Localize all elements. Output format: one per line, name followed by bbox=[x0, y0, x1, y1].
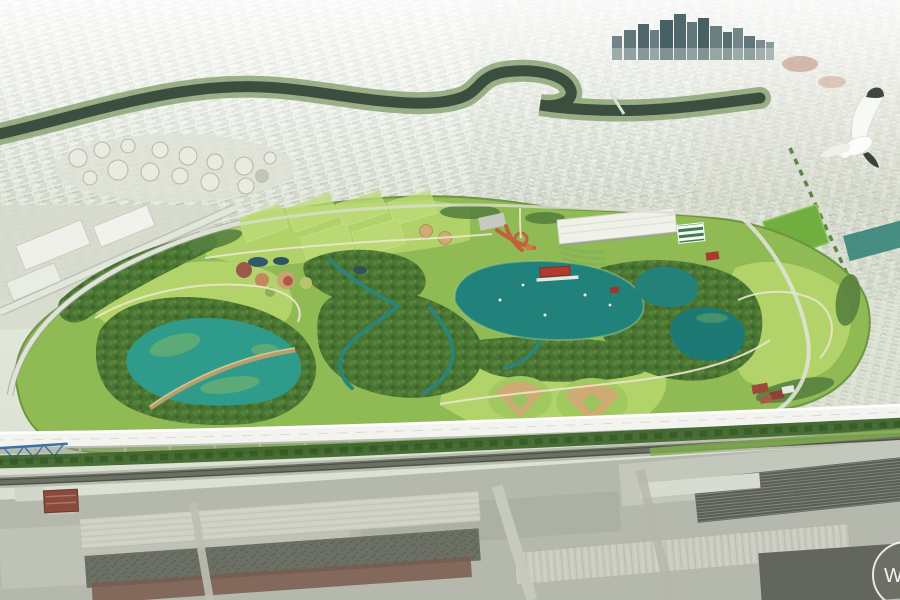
tank-yard bbox=[55, 134, 295, 202]
lakeside-hut bbox=[610, 287, 619, 294]
skyline-base-haze bbox=[608, 48, 778, 62]
brick-block-tint bbox=[782, 56, 818, 72]
boathouse bbox=[540, 266, 571, 277]
watermark-text: WR bbox=[884, 565, 900, 587]
brick-building bbox=[43, 489, 78, 513]
oil-tank-farm bbox=[55, 134, 295, 202]
striped-dome-building bbox=[677, 223, 705, 244]
dark-tank bbox=[255, 169, 269, 183]
aerial-rendering: WR bbox=[0, 0, 900, 600]
pond-algae-edge bbox=[696, 313, 728, 323]
plaza-pavilion bbox=[526, 245, 533, 250]
brick-block-tint-2 bbox=[818, 76, 846, 88]
scene-canvas: WR bbox=[0, 0, 900, 600]
